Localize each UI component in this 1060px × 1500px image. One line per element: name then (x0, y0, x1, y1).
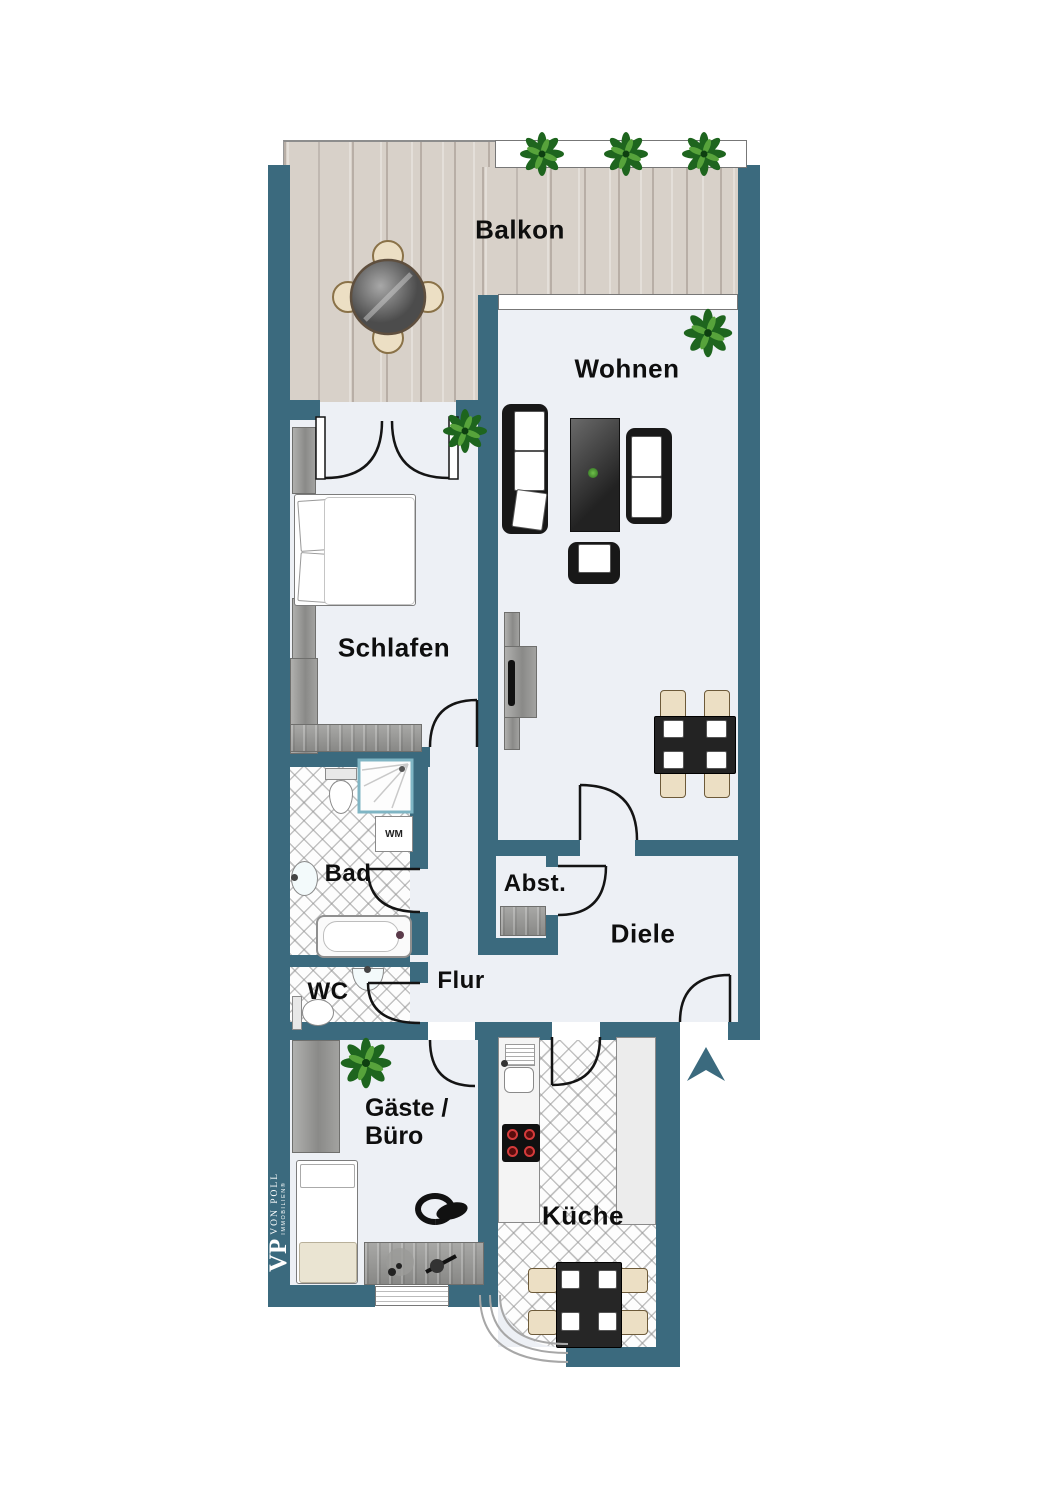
brand-monogram: VP (269, 1239, 289, 1272)
plant-icon (443, 409, 487, 453)
room-label-gaeste-line2: Büro (365, 1122, 448, 1150)
balcony-seating (333, 241, 443, 353)
room-label-bad: Bad (325, 860, 372, 888)
brand-division: IMMOBILIEN® (282, 1172, 288, 1235)
entrance-arrow-icon (687, 1047, 725, 1081)
door-arc (368, 983, 420, 1023)
room-label-abst: Abst. (504, 870, 567, 898)
door-arcs (316, 417, 730, 1086)
door-arc (392, 421, 449, 478)
plant-icon (684, 309, 732, 357)
room-label-gaeste-line1: Gäste / (365, 1094, 448, 1122)
door-arc (430, 700, 477, 747)
door-arc (430, 1040, 475, 1086)
plant-icon (682, 132, 726, 176)
floor-plan: WM (0, 0, 1060, 1500)
shower (359, 760, 412, 812)
plant-icon (341, 1038, 392, 1089)
room-label-wc: WC (308, 978, 349, 1006)
plant-icon (604, 132, 648, 176)
window-kueche-curved (480, 1295, 568, 1362)
door-arc (325, 421, 382, 478)
door-arc (552, 1037, 600, 1085)
room-label-schlafen: Schlafen (338, 633, 450, 664)
room-label-balkon: Balkon (475, 215, 565, 246)
door-arc (368, 869, 420, 912)
room-label-flur: Flur (437, 967, 484, 995)
door-arc (680, 975, 730, 1022)
room-label-gaeste-buero: Gäste / Büro (365, 1094, 448, 1150)
brand-logo: VP VON POLL IMMOBILIEN® (267, 1142, 291, 1302)
room-label-wohnen: Wohnen (574, 354, 679, 385)
room-label-diele: Diele (611, 919, 676, 950)
desk-items (386, 1248, 456, 1276)
room-label-kueche: Küche (542, 1201, 624, 1232)
brand-name: VON POLL (271, 1172, 281, 1235)
door-leaf (316, 417, 325, 479)
plant-icon (520, 132, 564, 176)
door-arc (580, 785, 637, 840)
desk-chair (418, 1196, 469, 1223)
